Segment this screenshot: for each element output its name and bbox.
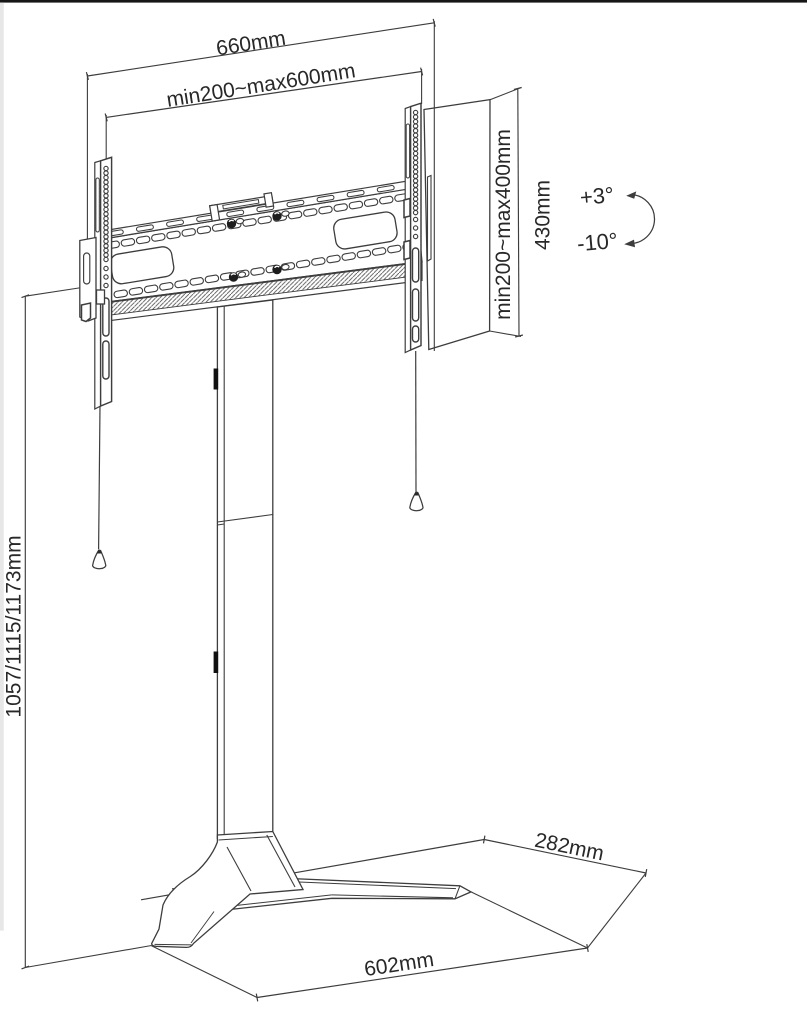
svg-text:1057/1115/1173mm: 1057/1115/1173mm — [3, 535, 26, 717]
svg-text:+3°: +3° — [579, 182, 615, 210]
svg-text:-10°: -10° — [576, 228, 619, 256]
svg-text:430mm: 430mm — [532, 180, 555, 250]
svg-text:min200~max400mm: min200~max400mm — [492, 129, 515, 320]
